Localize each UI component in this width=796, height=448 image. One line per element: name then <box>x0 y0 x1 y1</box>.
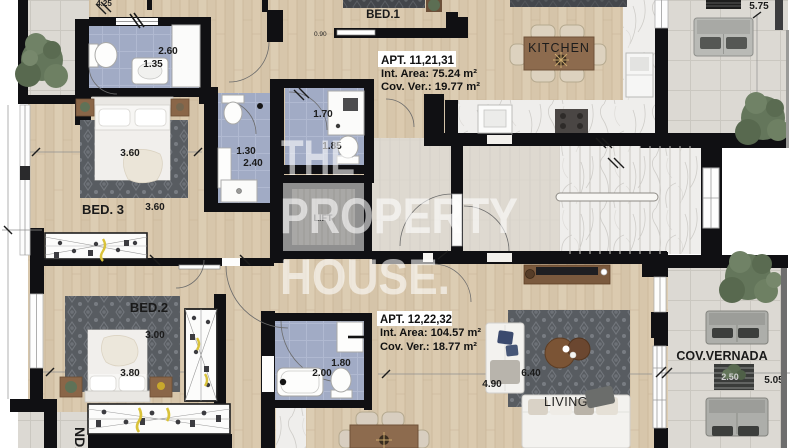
svg-text:Cov. Ver.: 18.77 m²: Cov. Ver.: 18.77 m² <box>380 341 477 353</box>
svg-text:BED. 3: BED. 3 <box>82 202 124 217</box>
svg-text:LIVING: LIVING <box>544 395 588 409</box>
svg-text:NDA: NDA <box>72 427 88 448</box>
svg-text:4.25: 4.25 <box>96 0 112 8</box>
svg-text:APT. 12,22,32: APT. 12,22,32 <box>380 312 452 326</box>
svg-text:2.60: 2.60 <box>158 46 178 57</box>
svg-text:3.80: 3.80 <box>120 368 140 379</box>
svg-text:2.40: 2.40 <box>243 158 263 169</box>
svg-text:5.75: 5.75 <box>749 1 769 12</box>
svg-text:BED.2: BED.2 <box>130 300 168 315</box>
svg-text:BED.1: BED.1 <box>366 9 400 21</box>
svg-text:3.60: 3.60 <box>145 202 165 213</box>
svg-text:6.40: 6.40 <box>521 368 541 379</box>
svg-text:2.00: 2.00 <box>312 368 332 379</box>
svg-text:Cov. Ver.: 19.77 m²: Cov. Ver.: 19.77 m² <box>381 81 480 93</box>
svg-text:0.90: 0.90 <box>314 31 327 38</box>
svg-text:KITCHEN: KITCHEN <box>528 41 590 55</box>
svg-text:1.80: 1.80 <box>331 358 351 369</box>
svg-text:4.90: 4.90 <box>482 379 502 390</box>
svg-text:Int. Area: 104.57 m²: Int. Area: 104.57 m² <box>380 327 481 339</box>
svg-text:COV.VERNADA: COV.VERNADA <box>676 349 767 363</box>
svg-text:3.60: 3.60 <box>120 148 140 159</box>
svg-text:1.70: 1.70 <box>313 109 333 120</box>
svg-text:Int. Area: 75.24 m²: Int. Area: 75.24 m² <box>381 68 477 80</box>
svg-text:PROPERTY: PROPERTY <box>280 188 518 244</box>
svg-text:1.30: 1.30 <box>236 146 256 157</box>
svg-text:THE: THE <box>281 130 355 186</box>
svg-text:APT. 11,21,31: APT. 11,21,31 <box>381 53 454 67</box>
svg-text:1.35: 1.35 <box>143 59 163 70</box>
svg-text:2.50: 2.50 <box>721 372 739 382</box>
svg-text:HOUSE.: HOUSE. <box>280 249 450 305</box>
svg-text:3.00: 3.00 <box>145 330 165 341</box>
